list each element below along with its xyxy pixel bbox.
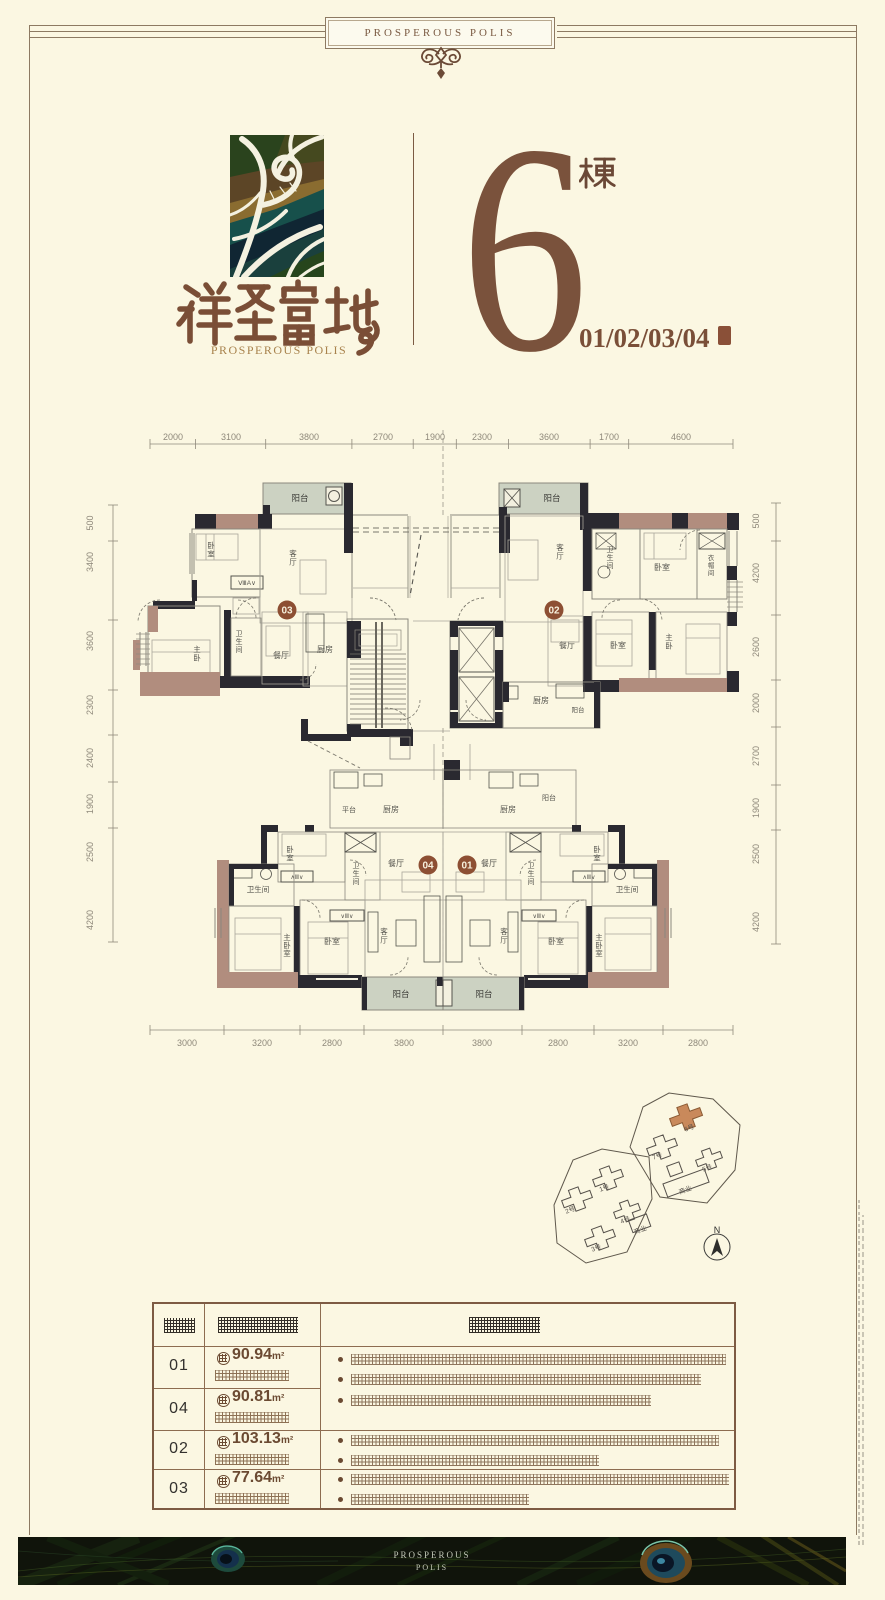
svg-text:500: 500 — [85, 515, 95, 530]
svg-text:2300: 2300 — [472, 432, 492, 442]
svg-text:1900: 1900 — [85, 794, 95, 814]
svg-text:生: 生 — [528, 869, 535, 878]
svg-text:ⅧA∨: ⅧA∨ — [238, 580, 256, 587]
svg-text:餐厅: 餐厅 — [388, 859, 404, 868]
svg-text:间: 间 — [528, 878, 535, 886]
svg-text:03: 03 — [281, 606, 293, 617]
svg-text:厨房: 厨房 — [500, 804, 516, 814]
svg-text:帽: 帽 — [708, 561, 715, 570]
svg-text:2000: 2000 — [751, 693, 761, 713]
svg-text:04: 04 — [422, 861, 434, 872]
svg-text:2700: 2700 — [373, 432, 393, 442]
svg-text:室: 室 — [593, 853, 601, 863]
svg-text:客: 客 — [380, 926, 388, 936]
svg-text:2号: 2号 — [564, 1204, 577, 1215]
svg-text:∨Ⅲ∨: ∨Ⅲ∨ — [341, 914, 354, 920]
svg-text:卫生间: 卫生间 — [616, 884, 639, 894]
svg-text:厨房: 厨房 — [383, 804, 399, 814]
svg-text:2600: 2600 — [751, 637, 761, 657]
svg-text:2400: 2400 — [85, 748, 95, 768]
svg-text:生: 生 — [607, 553, 614, 562]
svg-text:间: 间 — [353, 878, 360, 886]
svg-text:2700: 2700 — [751, 746, 761, 766]
svg-text:主: 主 — [665, 632, 673, 642]
svg-text:1900: 1900 — [425, 432, 445, 442]
svg-text:3000: 3000 — [177, 1038, 197, 1048]
svg-text:4200: 4200 — [85, 910, 95, 930]
svg-text:室: 室 — [283, 948, 291, 958]
svg-text:3100: 3100 — [221, 432, 241, 442]
svg-text:厅: 厅 — [500, 936, 508, 945]
svg-text:5号: 5号 — [701, 1162, 714, 1173]
svg-text:3400: 3400 — [85, 552, 95, 572]
svg-text:4600: 4600 — [671, 432, 691, 442]
svg-text:间: 间 — [708, 569, 715, 577]
svg-text:卫: 卫 — [236, 630, 243, 638]
svg-text:卧室: 卧室 — [548, 936, 564, 946]
svg-text:4200: 4200 — [751, 563, 761, 583]
svg-text:主: 主 — [193, 644, 201, 654]
svg-text:阳台: 阳台 — [543, 493, 560, 503]
svg-text:餐厅: 餐厅 — [481, 859, 497, 868]
svg-text:3200: 3200 — [618, 1038, 638, 1048]
svg-text:生: 生 — [353, 869, 360, 878]
svg-text:阳台: 阳台 — [572, 705, 585, 714]
svg-text:3600: 3600 — [539, 432, 559, 442]
svg-text:1号: 1号 — [598, 1182, 611, 1193]
svg-text:厅: 厅 — [556, 552, 564, 561]
svg-text:卧: 卧 — [665, 642, 673, 651]
svg-text:3800: 3800 — [394, 1038, 414, 1048]
svg-text:生: 生 — [236, 637, 243, 646]
svg-text:卧室: 卧室 — [610, 640, 626, 650]
svg-text:阳台: 阳台 — [542, 793, 556, 802]
svg-text:阳台: 阳台 — [392, 989, 409, 999]
svg-text:室: 室 — [207, 549, 215, 559]
svg-text:商业: 商业 — [632, 1223, 648, 1236]
svg-text:间: 间 — [607, 562, 614, 570]
svg-text:PROSPEROUS: PROSPEROUS — [393, 1550, 470, 1560]
svg-text:厅: 厅 — [289, 558, 297, 567]
svg-text:N: N — [714, 1225, 721, 1235]
svg-text:厨房: 厨房 — [317, 644, 333, 654]
svg-text:卧室: 卧室 — [324, 936, 340, 946]
svg-text:2800: 2800 — [548, 1038, 568, 1048]
svg-text:阳台: 阳台 — [475, 989, 492, 999]
svg-text:500: 500 — [751, 513, 761, 528]
svg-text:厨房: 厨房 — [533, 695, 549, 705]
svg-text:2000: 2000 — [163, 432, 183, 442]
svg-text:7号: 7号 — [651, 1150, 664, 1161]
svg-text:POLIS: POLIS — [416, 1563, 448, 1572]
svg-text:01: 01 — [461, 861, 473, 872]
svg-text:3200: 3200 — [252, 1038, 272, 1048]
svg-text:2800: 2800 — [322, 1038, 342, 1048]
svg-text:室: 室 — [595, 948, 603, 958]
svg-text:室: 室 — [286, 853, 294, 863]
svg-text:卫: 卫 — [607, 546, 614, 554]
svg-text:4200: 4200 — [751, 912, 761, 932]
svg-text:∧Ⅲ∨: ∧Ⅲ∨ — [583, 875, 596, 881]
svg-text:3600: 3600 — [85, 631, 95, 651]
svg-text:2800: 2800 — [688, 1038, 708, 1048]
svg-text:1900: 1900 — [751, 798, 761, 818]
svg-text:客: 客 — [556, 542, 564, 552]
svg-text:∨Ⅲ∨: ∨Ⅲ∨ — [533, 914, 546, 920]
svg-text:客: 客 — [289, 548, 297, 558]
svg-text:2500: 2500 — [85, 842, 95, 862]
svg-text:卧: 卧 — [193, 654, 201, 663]
svg-text:商业: 商业 — [677, 1183, 693, 1196]
svg-text:卧室: 卧室 — [654, 562, 670, 572]
svg-text:3800: 3800 — [472, 1038, 492, 1048]
svg-text:1700: 1700 — [599, 432, 619, 442]
svg-text:卫生间: 卫生间 — [247, 884, 270, 894]
svg-text:阳台: 阳台 — [291, 493, 308, 503]
svg-text:厅: 厅 — [380, 936, 388, 945]
svg-text:客: 客 — [500, 926, 508, 936]
svg-text:3号: 3号 — [590, 1242, 603, 1253]
svg-text:衣: 衣 — [708, 553, 715, 562]
svg-text:∧Ⅲ∨: ∧Ⅲ∨ — [291, 875, 304, 881]
svg-text:餐厅: 餐厅 — [273, 651, 289, 660]
svg-text:2300: 2300 — [85, 695, 95, 715]
svg-text:卫: 卫 — [528, 862, 535, 870]
svg-text:间: 间 — [236, 646, 243, 654]
svg-text:卫: 卫 — [353, 862, 360, 870]
svg-text:平台: 平台 — [342, 805, 356, 814]
svg-text:2500: 2500 — [751, 844, 761, 864]
svg-text:3800: 3800 — [299, 432, 319, 442]
svg-text:02: 02 — [548, 606, 560, 617]
